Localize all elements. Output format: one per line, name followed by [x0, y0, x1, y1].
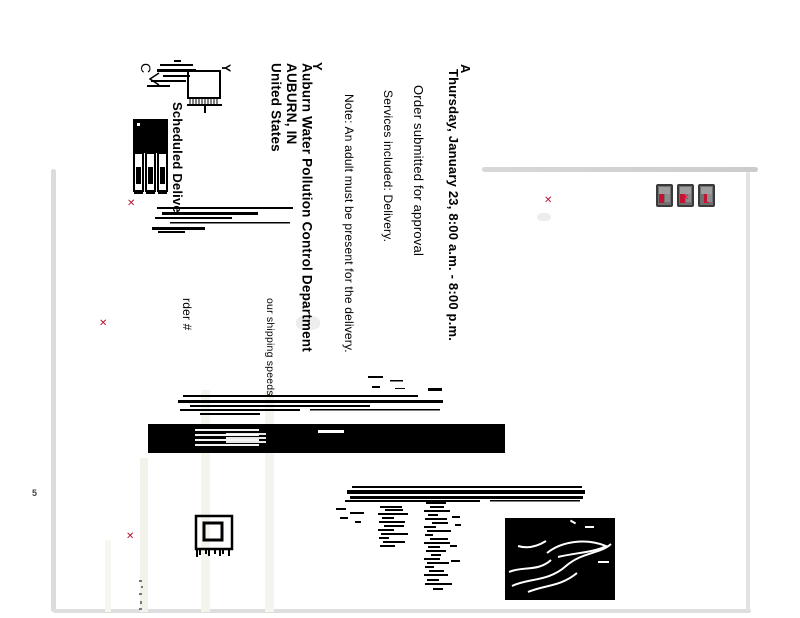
thumbnail-image: [701, 187, 712, 194]
illegible-button-label: [226, 433, 266, 445]
attachment-thumbnail-1[interactable]: [656, 184, 673, 207]
card-border-top: [482, 167, 758, 172]
card-border-right: [746, 172, 750, 610]
order-status-text: Order submitted for approval: [411, 85, 426, 256]
broken-image-icon: ✕: [544, 196, 552, 206]
card-border-bottom: [53, 609, 751, 613]
recipient-name: Auburn Water Pollution Control Departmen…: [299, 63, 315, 352]
scribble-marks-small: [368, 376, 405, 389]
recipient-city-state: AUBURN, IN: [284, 63, 300, 352]
attachment-thumbnail-3[interactable]: [698, 184, 715, 207]
card-border-left: [51, 169, 56, 612]
broken-image-icon: ✕: [99, 319, 107, 329]
truck-icon: [133, 119, 168, 194]
stray-letter-y-box: Y: [219, 64, 233, 72]
attachment-thumbnail-2[interactable]: ✕: [677, 184, 694, 207]
services-included-text: Services included: Delivery.: [381, 90, 395, 242]
adult-present-note: Note: An adult must be present for the d…: [342, 94, 356, 353]
scheduled-delivery-label: Scheduled Delive: [170, 102, 185, 213]
thumbnail-gray-block: [665, 194, 670, 202]
scribble-lines-bottom: [336, 486, 585, 523]
thumbnail-gray-block: [707, 194, 712, 202]
scribble-lines-middle: [178, 388, 443, 415]
illegible-text-scribble: [424, 502, 461, 590]
signature-box-icon: [187, 71, 222, 113]
column-stripe: [140, 458, 148, 612]
broken-image-icon: ✕: [682, 193, 690, 203]
stray-letter-c: C: [138, 63, 154, 73]
illegible-text-scribble: [378, 506, 408, 547]
inverted-photo: [505, 518, 615, 600]
header-scribble: [147, 60, 196, 87]
thumbnail-red-block: [659, 194, 664, 203]
thumbnail-image: [659, 187, 670, 194]
broken-image-icon: ✕: [127, 199, 135, 209]
column-stripe: [105, 540, 111, 612]
rotated-order-page: A Thursday, January 23, 8:00 a.m. - 8:00…: [0, 0, 800, 618]
page-margin-mark: 5: [32, 488, 37, 498]
delivery-window-text: Thursday, January 23, 8:00 a.m. - 8:00 p…: [446, 69, 461, 341]
order-number-label: rder #: [180, 298, 194, 331]
shipping-speed-label: our shipping speeds: [264, 298, 276, 396]
ink-smudge: [537, 213, 551, 221]
illegible-button-label: [318, 430, 344, 433]
broken-image-icon: ✕: [126, 532, 134, 542]
primary-action-button[interactable]: [148, 424, 505, 453]
